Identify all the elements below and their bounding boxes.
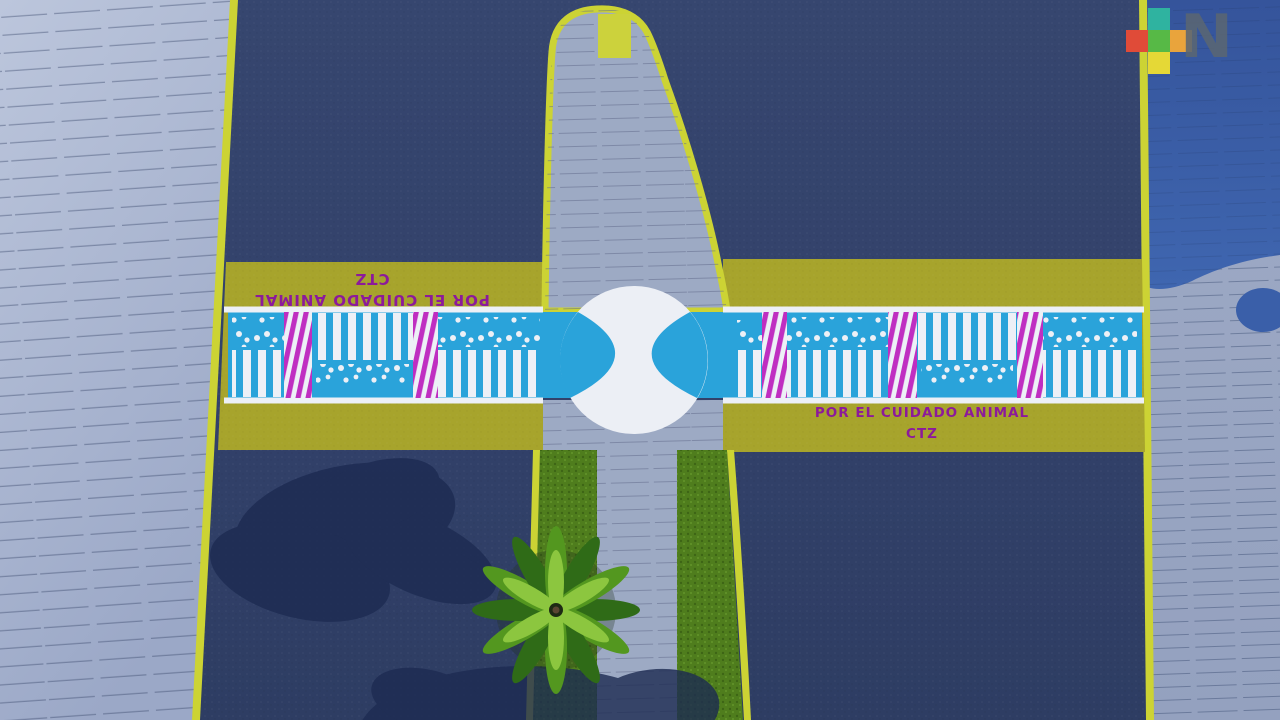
caption-south-line2: CTZ bbox=[906, 426, 938, 442]
logo-letter-n: N bbox=[1180, 2, 1233, 72]
caption-south-line1: POR EL CUIDADO ANIMAL bbox=[815, 405, 1029, 421]
caption-north-line2: CTZ bbox=[354, 270, 389, 288]
aerial-street-render: POR EL CUIDADO ANIMAL CTZ POR EL CUIDADO… bbox=[0, 0, 1280, 720]
island-tip-yellow-pad bbox=[598, 14, 631, 58]
crosswalk-pattern-east bbox=[737, 312, 1137, 398]
right-sidewalk bbox=[1146, 0, 1280, 720]
logo-plus-teal-square bbox=[1148, 8, 1170, 30]
logo-plus-yellow-square bbox=[1148, 52, 1170, 74]
logo-plus-green-square bbox=[1148, 30, 1170, 52]
crosswalk-pattern-west bbox=[232, 312, 543, 398]
center-circle-plaza bbox=[560, 286, 708, 434]
logo-plus-red-square bbox=[1126, 30, 1148, 52]
caption-north-line1: POR EL CUIDADO ANIMAL bbox=[254, 291, 490, 309]
